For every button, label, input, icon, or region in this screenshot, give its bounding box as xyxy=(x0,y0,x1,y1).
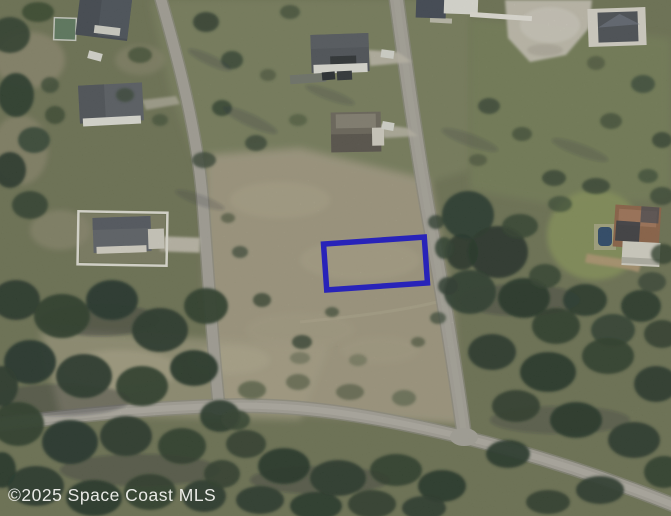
watermark: ©2025 Space Coast MLS xyxy=(8,485,216,505)
grain-light xyxy=(0,0,671,516)
aerial-scene: ©2025 Space Coast MLS xyxy=(0,0,671,516)
aerial-listing-photo: ©2025 Space Coast MLS xyxy=(0,0,671,516)
